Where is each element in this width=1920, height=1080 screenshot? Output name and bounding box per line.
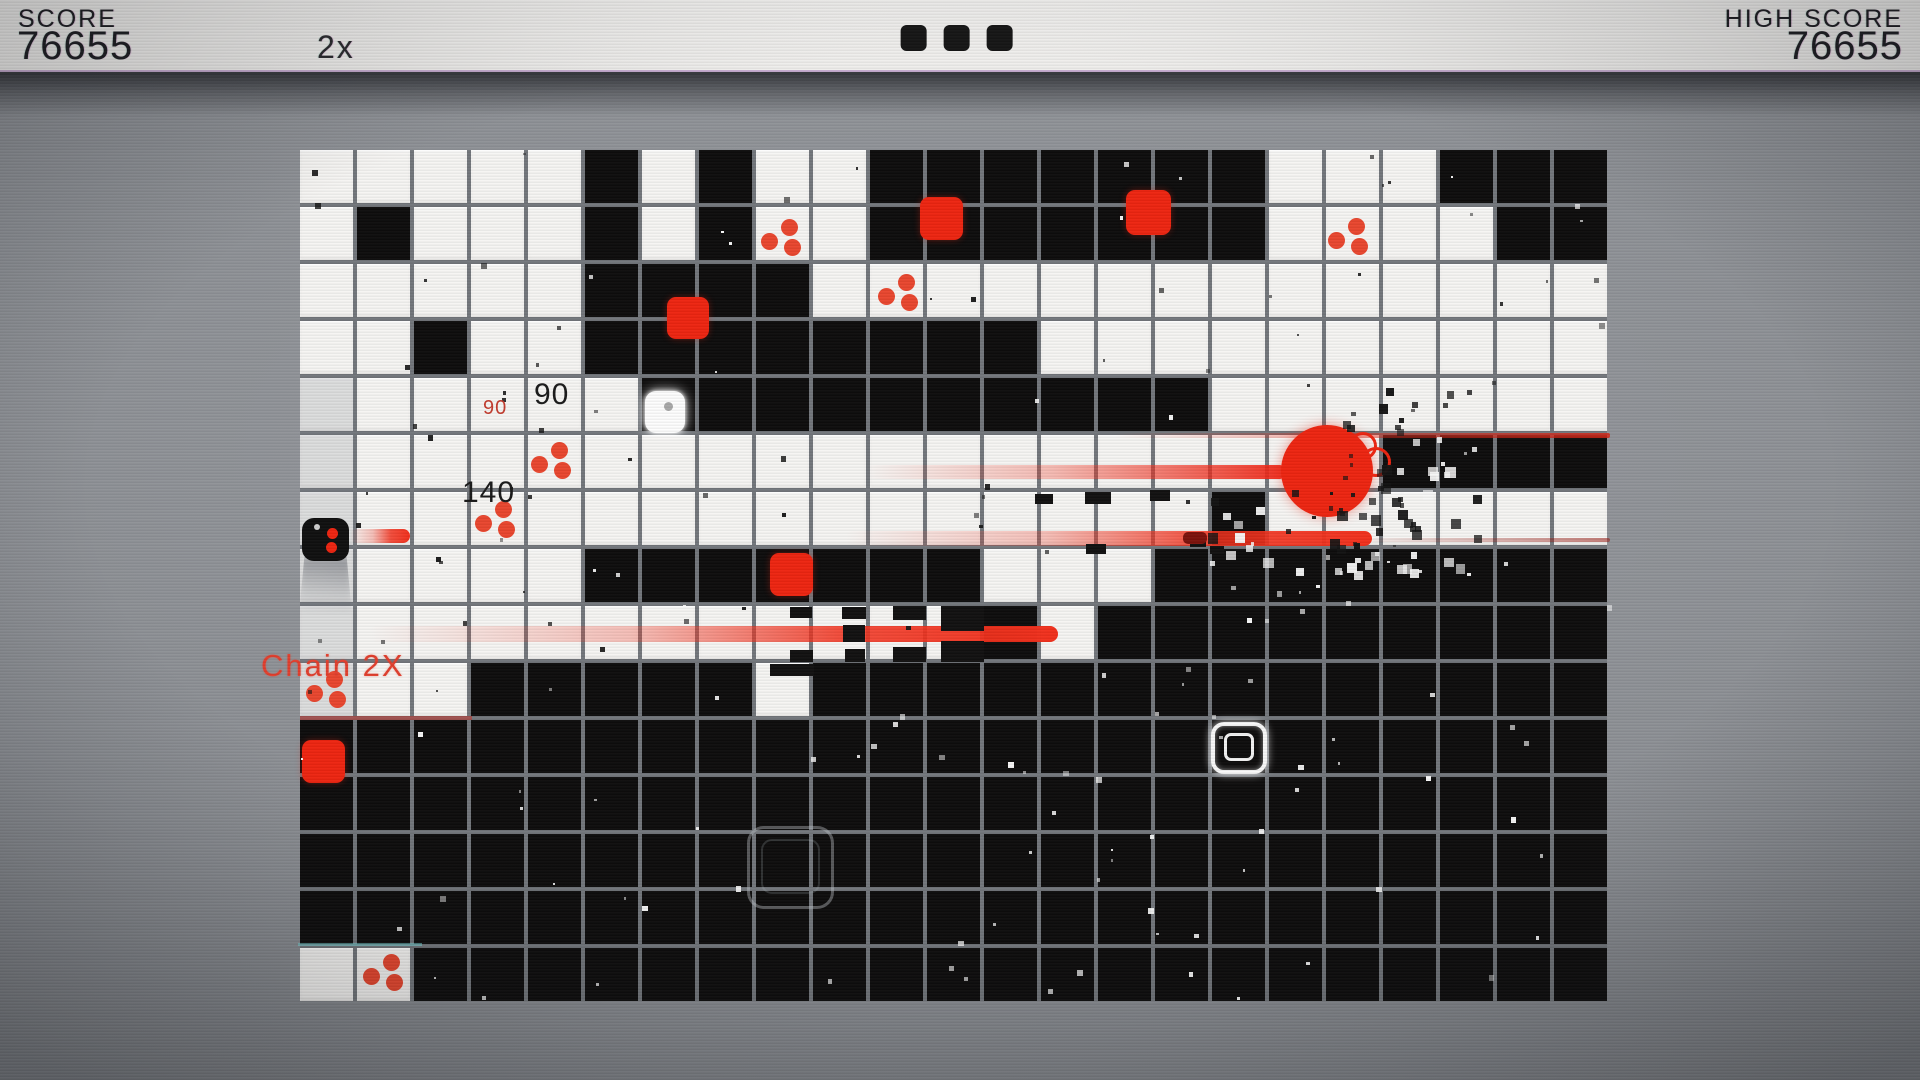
grid-cell bbox=[357, 720, 410, 773]
grid-cell bbox=[984, 321, 1037, 374]
grid-cell bbox=[870, 207, 923, 260]
ammo-pickup-dot bbox=[784, 239, 801, 256]
grid-cell bbox=[1440, 834, 1493, 887]
grid-cell bbox=[984, 891, 1037, 944]
debris-speck bbox=[1096, 777, 1102, 783]
grid-cell bbox=[1041, 549, 1094, 602]
explosion-debris bbox=[1474, 535, 1482, 543]
debris-speck bbox=[500, 538, 503, 541]
cell-fragment bbox=[790, 650, 813, 662]
grid-cell bbox=[813, 435, 866, 488]
grid-cell bbox=[1383, 777, 1436, 830]
grid-cell bbox=[927, 720, 980, 773]
explosion-debris bbox=[1359, 513, 1367, 521]
grid-cell bbox=[1440, 264, 1493, 317]
grid-cell bbox=[1497, 435, 1550, 488]
cell-fragment bbox=[1210, 546, 1224, 554]
grid-cell bbox=[1326, 321, 1379, 374]
debris-speck bbox=[318, 639, 322, 643]
explosion-debris bbox=[1347, 563, 1357, 573]
grid-cell bbox=[1497, 606, 1550, 659]
grid-cell bbox=[1269, 207, 1322, 260]
debris-speck bbox=[982, 495, 986, 499]
grid-cell bbox=[984, 948, 1037, 1001]
debris-speck bbox=[1387, 561, 1390, 564]
grid-cell bbox=[1383, 891, 1436, 944]
grid-cell bbox=[1212, 150, 1265, 203]
debris-speck bbox=[589, 275, 593, 279]
grid-cell bbox=[1098, 834, 1151, 887]
explosion-debris bbox=[1441, 462, 1445, 466]
debris-speck bbox=[436, 557, 441, 562]
grid-cell bbox=[699, 948, 752, 1001]
debris-speck bbox=[971, 297, 976, 302]
grid-cell bbox=[471, 549, 524, 602]
grid-cell bbox=[1041, 834, 1094, 887]
grid-cell bbox=[300, 948, 353, 1001]
grid-cell bbox=[1383, 321, 1436, 374]
cell-fragment bbox=[845, 649, 865, 662]
explosion-debris bbox=[1371, 515, 1381, 525]
debris-speck bbox=[1295, 788, 1300, 793]
grid-cell bbox=[357, 264, 410, 317]
debris-speck bbox=[893, 722, 898, 727]
grid-cell bbox=[357, 378, 410, 431]
debris-speck bbox=[1159, 288, 1164, 293]
debris-speck bbox=[993, 923, 996, 926]
grid-cell bbox=[642, 492, 695, 545]
debris-speck bbox=[1277, 591, 1282, 596]
player-ammo-dot bbox=[326, 542, 337, 553]
grid-cell bbox=[471, 264, 524, 317]
debris-speck bbox=[1148, 908, 1154, 914]
grid-cell bbox=[870, 720, 923, 773]
debris-speck bbox=[1510, 725, 1515, 730]
debris-speck bbox=[600, 647, 605, 652]
grid-cell bbox=[1098, 549, 1151, 602]
grid-cell bbox=[1269, 834, 1322, 887]
grid-cell bbox=[1326, 777, 1379, 830]
explosion-debris bbox=[1381, 483, 1391, 493]
grid-cell bbox=[1098, 321, 1151, 374]
grid-cell bbox=[585, 207, 638, 260]
explosion-debris bbox=[1397, 565, 1407, 575]
grid-cell bbox=[1440, 777, 1493, 830]
debris-speck bbox=[397, 927, 401, 931]
grid-cell bbox=[528, 720, 581, 773]
grid-cell bbox=[1554, 663, 1607, 716]
grid-cell bbox=[1440, 720, 1493, 773]
grid-cell bbox=[870, 264, 923, 317]
grid-cell bbox=[1554, 264, 1607, 317]
grid-cell bbox=[1554, 321, 1607, 374]
grid-cell bbox=[1269, 378, 1322, 431]
grid-cell bbox=[1098, 264, 1151, 317]
grid-cell bbox=[1041, 264, 1094, 317]
debris-speck bbox=[1599, 323, 1605, 329]
grid-cell bbox=[699, 435, 752, 488]
debris-speck bbox=[1467, 390, 1472, 395]
grid-cell bbox=[528, 150, 581, 203]
debris-speck bbox=[413, 424, 417, 428]
debris-speck bbox=[1307, 384, 1310, 387]
cell-fragment bbox=[770, 664, 814, 676]
explosion-debris bbox=[1464, 452, 1467, 455]
grid-cell bbox=[813, 321, 866, 374]
grid-cell bbox=[300, 891, 353, 944]
cell-fragment bbox=[893, 606, 926, 620]
ammo-pickup-dot bbox=[475, 515, 492, 532]
grid-cell bbox=[1554, 549, 1607, 602]
grid-cell bbox=[1383, 834, 1436, 887]
grid-cell bbox=[1326, 264, 1379, 317]
enemy-bullet bbox=[1183, 532, 1207, 544]
grid-cell bbox=[1212, 891, 1265, 944]
grid-cell bbox=[813, 720, 866, 773]
grid-cell bbox=[1155, 720, 1208, 773]
debris-speck bbox=[939, 755, 945, 761]
grid-cell bbox=[414, 435, 467, 488]
grid-cell bbox=[414, 834, 467, 887]
player-shadow bbox=[299, 557, 352, 615]
grid-cell bbox=[870, 549, 923, 602]
grid-cell bbox=[1041, 720, 1094, 773]
debris-speck bbox=[684, 619, 689, 624]
debris-speck bbox=[930, 298, 932, 300]
grid-cell bbox=[642, 891, 695, 944]
grid-cell bbox=[1155, 834, 1208, 887]
grid-cell bbox=[1155, 606, 1208, 659]
explosion-debris bbox=[1451, 519, 1461, 529]
grid-cell bbox=[1041, 435, 1094, 488]
cell-fragment bbox=[842, 607, 866, 619]
grid-cell bbox=[1041, 777, 1094, 830]
debris-speck bbox=[519, 790, 521, 792]
grid-cell bbox=[1212, 549, 1265, 602]
grid-cell bbox=[927, 891, 980, 944]
player-black-square bbox=[302, 518, 349, 561]
grid-cell bbox=[870, 378, 923, 431]
explosion-debris bbox=[1343, 476, 1348, 481]
debris-speck bbox=[1035, 399, 1039, 403]
score-popup: 140 bbox=[462, 478, 515, 508]
debris-speck bbox=[557, 326, 561, 330]
grid-cell bbox=[528, 891, 581, 944]
debris-speck bbox=[312, 170, 318, 176]
explosion-debris bbox=[1443, 403, 1448, 408]
player-eye-dot bbox=[664, 402, 673, 411]
grid-cell bbox=[1497, 264, 1550, 317]
grid-cell bbox=[1212, 948, 1265, 1001]
debris-speck bbox=[482, 996, 486, 1000]
explosion-debris bbox=[1329, 506, 1333, 510]
grid-cell bbox=[300, 321, 353, 374]
grid-cell bbox=[357, 435, 410, 488]
grid-cell bbox=[357, 321, 410, 374]
explosion-debris bbox=[1369, 498, 1376, 505]
debris-speck bbox=[463, 621, 467, 625]
grid-cell bbox=[756, 720, 809, 773]
explosion-debris bbox=[1335, 568, 1342, 575]
debris-speck bbox=[1489, 975, 1494, 980]
grid-cell bbox=[756, 948, 809, 1001]
grid-cell bbox=[927, 549, 980, 602]
grid-cell bbox=[414, 321, 467, 374]
debris-speck bbox=[1511, 817, 1516, 822]
grid-cell bbox=[1041, 891, 1094, 944]
grid-cell bbox=[1098, 720, 1151, 773]
explosion-debris bbox=[1412, 402, 1418, 408]
cell-fragment bbox=[1150, 490, 1170, 501]
grid-cell bbox=[1383, 720, 1436, 773]
debris-speck bbox=[642, 906, 647, 911]
grid-cell bbox=[300, 378, 353, 431]
explosion-debris bbox=[1351, 412, 1356, 417]
grid-cell bbox=[927, 777, 980, 830]
grid-cell bbox=[585, 549, 638, 602]
debris-speck bbox=[594, 410, 598, 414]
grid-cell bbox=[1098, 435, 1151, 488]
grid-cell bbox=[585, 663, 638, 716]
debris-speck bbox=[857, 755, 860, 758]
score-popup: 90 bbox=[534, 380, 569, 410]
debris-speck bbox=[624, 897, 627, 900]
grid-cell bbox=[1212, 207, 1265, 260]
grid-cell bbox=[699, 663, 752, 716]
debris-speck bbox=[1247, 618, 1252, 623]
grid-cell bbox=[1212, 435, 1265, 488]
debris-speck bbox=[856, 167, 858, 169]
grid-cell bbox=[1212, 663, 1265, 716]
debris-speck bbox=[736, 886, 741, 891]
debris-speck bbox=[1111, 849, 1113, 851]
grid-cell bbox=[1497, 834, 1550, 887]
ammo-pickup-dot bbox=[329, 691, 346, 708]
grid-cell bbox=[813, 549, 866, 602]
debris-speck bbox=[1189, 972, 1193, 976]
explosion-debris bbox=[1376, 528, 1384, 536]
hud-bar: SCORE 76655 2x HIGH SCORE 76655 bbox=[0, 0, 1920, 72]
grid-cell bbox=[984, 777, 1037, 830]
grid-cell bbox=[1440, 378, 1493, 431]
grid-cell bbox=[300, 777, 353, 830]
debris-speck bbox=[1008, 762, 1014, 768]
hud-shadow-band bbox=[0, 72, 1920, 116]
debris-speck bbox=[1546, 280, 1548, 282]
grid-cell bbox=[699, 891, 752, 944]
grid-cell bbox=[813, 663, 866, 716]
grid-cell bbox=[1326, 378, 1379, 431]
enemy-red-square bbox=[770, 553, 813, 596]
debris-speck bbox=[1237, 997, 1240, 1000]
chain-multiplier-text: Chain 2X bbox=[261, 650, 405, 681]
grid-cell bbox=[1041, 150, 1094, 203]
debris-speck bbox=[979, 525, 983, 529]
grid-cell bbox=[357, 150, 410, 203]
grid-cell bbox=[357, 777, 410, 830]
debris-speck bbox=[958, 941, 964, 947]
grid-cell bbox=[414, 150, 467, 203]
grid-cell bbox=[1098, 606, 1151, 659]
grid-cell bbox=[699, 207, 752, 260]
cell-fragment bbox=[1085, 492, 1111, 504]
cell-fragment bbox=[941, 606, 984, 631]
grid-cell bbox=[756, 264, 809, 317]
debris-speck bbox=[1212, 715, 1215, 718]
grid-cell bbox=[528, 948, 581, 1001]
explosion-debris bbox=[1472, 447, 1477, 452]
debris-speck bbox=[974, 513, 979, 518]
reticle-inner-outline bbox=[761, 839, 820, 894]
ammo-pickup-dot bbox=[531, 456, 548, 473]
grid-cell bbox=[1497, 378, 1550, 431]
grid-cell bbox=[528, 663, 581, 716]
explosion-debris bbox=[1456, 564, 1465, 573]
grid-cell bbox=[870, 150, 923, 203]
grid-cell bbox=[1155, 435, 1208, 488]
ammo-pickup-dot bbox=[761, 233, 778, 250]
debris-speck bbox=[703, 493, 708, 498]
grid-cell bbox=[1497, 891, 1550, 944]
debris-speck bbox=[1346, 601, 1351, 606]
grid-cell bbox=[642, 549, 695, 602]
grid-cell bbox=[1383, 378, 1436, 431]
cell-fragment bbox=[893, 647, 926, 662]
debris-speck bbox=[1575, 204, 1580, 209]
grid-cell bbox=[1554, 378, 1607, 431]
grid-cell bbox=[642, 663, 695, 716]
grid-cell bbox=[1326, 834, 1379, 887]
grid-cell bbox=[927, 150, 980, 203]
life-square bbox=[901, 25, 927, 51]
debris-speck bbox=[436, 690, 438, 692]
grid-cell bbox=[1155, 378, 1208, 431]
debris-speck bbox=[1077, 970, 1083, 976]
grid-cell bbox=[1041, 378, 1094, 431]
explosion-debris bbox=[1401, 492, 1404, 495]
debris-speck bbox=[616, 573, 620, 577]
grid-cell bbox=[984, 834, 1037, 887]
debris-speck bbox=[1103, 359, 1105, 361]
ammo-pickup-dot bbox=[554, 462, 571, 479]
debris-speck bbox=[593, 569, 596, 572]
debris-speck bbox=[1393, 545, 1395, 547]
grid-cell bbox=[1041, 321, 1094, 374]
grid-cell bbox=[528, 777, 581, 830]
debris-speck bbox=[871, 744, 877, 750]
explosion-debris bbox=[1263, 558, 1273, 568]
bullet-trail bbox=[1372, 538, 1610, 542]
debris-speck bbox=[1300, 609, 1305, 614]
grid-cell bbox=[984, 663, 1037, 716]
grid-cell bbox=[1326, 663, 1379, 716]
grid-cell bbox=[927, 435, 980, 488]
grid-cell bbox=[1554, 777, 1607, 830]
debris-speck bbox=[434, 977, 436, 979]
grid-cell bbox=[471, 207, 524, 260]
debris-speck bbox=[1297, 334, 1299, 336]
explosion-debris bbox=[1399, 418, 1404, 423]
debris-speck bbox=[405, 365, 410, 370]
grid-cell bbox=[414, 492, 467, 545]
grid-cell bbox=[756, 777, 809, 830]
debris-speck bbox=[539, 428, 544, 433]
debris-speck bbox=[315, 203, 321, 209]
debris-speck bbox=[301, 758, 303, 760]
debris-speck bbox=[900, 714, 906, 720]
game-viewport[interactable]: SCORE 76655 2x HIGH SCORE 76655 9090140 … bbox=[0, 0, 1920, 1080]
grid-cell bbox=[585, 834, 638, 887]
debris-speck bbox=[594, 799, 597, 802]
grid-cell bbox=[699, 150, 752, 203]
grid-cell bbox=[528, 492, 581, 545]
debris-speck bbox=[1382, 184, 1385, 187]
grid-cell bbox=[699, 834, 752, 887]
debris-speck bbox=[1124, 162, 1128, 166]
grid-cell bbox=[414, 948, 467, 1001]
explosion-debris bbox=[1337, 545, 1346, 554]
grid-cell bbox=[300, 264, 353, 317]
grid-cell bbox=[642, 720, 695, 773]
ammo-pickup-dot bbox=[1328, 232, 1345, 249]
spawn-reticle bbox=[747, 826, 834, 909]
grid-cell bbox=[528, 549, 581, 602]
debris-speck bbox=[1259, 829, 1264, 834]
grid-cell bbox=[1269, 891, 1322, 944]
debris-speck bbox=[1338, 762, 1340, 764]
grid-cell bbox=[471, 321, 524, 374]
grid-cell bbox=[1497, 321, 1550, 374]
debris-speck bbox=[596, 983, 599, 986]
cell-fragment bbox=[1086, 544, 1106, 554]
grid-cell bbox=[1155, 948, 1208, 1001]
enemy-red-square bbox=[667, 297, 709, 339]
grid-cell bbox=[1554, 720, 1607, 773]
grid-cell bbox=[813, 264, 866, 317]
ammo-pickup-dot bbox=[898, 274, 915, 291]
debris-speck bbox=[1063, 771, 1068, 776]
grid-cell bbox=[699, 549, 752, 602]
debris-speck bbox=[1231, 586, 1236, 591]
explosion-debris bbox=[1412, 530, 1423, 541]
debris-speck bbox=[1358, 273, 1361, 276]
debris-speck bbox=[549, 688, 552, 691]
debris-speck bbox=[1265, 619, 1268, 622]
debris-speck bbox=[1430, 693, 1435, 698]
life-square bbox=[944, 25, 970, 51]
explosion-debris bbox=[1423, 490, 1433, 500]
grid-cell bbox=[1554, 435, 1607, 488]
debris-speck bbox=[1306, 962, 1310, 966]
grid-cell bbox=[1383, 606, 1436, 659]
explosion-debris bbox=[1337, 511, 1348, 522]
explosion-debris bbox=[1223, 513, 1230, 520]
debris-speck bbox=[1451, 176, 1453, 178]
grid-cell bbox=[414, 207, 467, 260]
grid-cell bbox=[870, 321, 923, 374]
grid-cell bbox=[1098, 777, 1151, 830]
debris-speck bbox=[721, 231, 723, 233]
explosion-debris bbox=[1447, 391, 1454, 398]
grid-cell bbox=[1383, 264, 1436, 317]
grid-cell bbox=[471, 891, 524, 944]
grid-cell bbox=[300, 834, 353, 887]
grid-cell bbox=[357, 891, 410, 944]
ammo-pickup-dot bbox=[386, 974, 403, 991]
explosion-debris bbox=[1246, 545, 1253, 552]
grid-cell bbox=[927, 264, 980, 317]
explosion-debris bbox=[1354, 543, 1360, 549]
